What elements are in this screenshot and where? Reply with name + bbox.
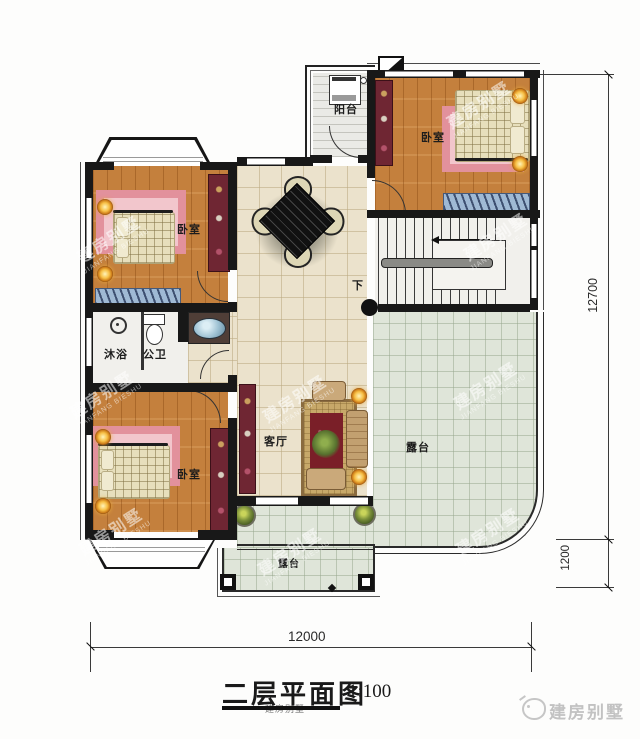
terrace-column-left xyxy=(220,574,236,590)
bay-top-sill2 xyxy=(103,161,203,162)
wall-segment xyxy=(228,375,237,392)
living-lamp xyxy=(351,469,367,485)
logo-icon-eye xyxy=(527,705,530,708)
dim-terrace-depth: 1200 xyxy=(560,545,572,571)
strip-outer-face-bottom xyxy=(217,596,380,597)
terrace-parapet-outer xyxy=(373,312,544,554)
basin-bowl xyxy=(193,318,226,339)
terrace-level-line2 xyxy=(237,549,375,550)
toilet-bowl xyxy=(146,324,163,345)
window xyxy=(86,198,92,258)
face-line-left xyxy=(80,162,81,540)
wall-bath-chunk xyxy=(178,310,188,342)
tv-cabinet xyxy=(239,384,256,494)
strip-outer-face-left xyxy=(217,548,218,597)
wall-segment xyxy=(85,383,237,392)
title-underline xyxy=(222,706,340,710)
face-line-right xyxy=(543,70,544,310)
bed1-wardrobe xyxy=(208,174,230,272)
stair-arrow-line xyxy=(438,239,490,240)
room-label-balcony: 阳台 xyxy=(334,101,358,117)
stair-handrail xyxy=(381,258,493,268)
stairs-down-label: 下 xyxy=(352,277,364,293)
wall-stairs-south xyxy=(378,304,530,312)
window xyxy=(86,318,92,366)
bed3-pillow xyxy=(510,126,525,154)
terrace-level-line xyxy=(237,544,375,546)
room-label-terrace-strip: 露台 xyxy=(278,555,300,570)
structural-column xyxy=(361,299,378,316)
window xyxy=(531,100,537,156)
wall-balcony-door-l xyxy=(310,155,332,163)
sheet-scale: 1:100 xyxy=(348,681,391,703)
room-label-bedroom1: 卧室 xyxy=(177,221,201,237)
bed1-lamp xyxy=(97,266,113,282)
sofa-top xyxy=(312,381,346,401)
bed1-blanket-edge xyxy=(113,210,173,213)
dim-ext-bot xyxy=(556,587,614,588)
wall-segment xyxy=(228,302,237,312)
balcony-knob xyxy=(360,77,367,84)
washer-panel xyxy=(332,77,356,81)
room-label-living: 客厅 xyxy=(264,433,288,449)
wall-bedroom3-west xyxy=(367,70,375,178)
bed2-pillow xyxy=(101,471,114,491)
bed2-lamp xyxy=(95,429,111,445)
window xyxy=(531,250,537,298)
window xyxy=(256,497,298,505)
floor-plan-sheet: 卧室 沐浴 公卫 卧室 阳台 卧室 xyxy=(0,0,640,739)
stair-arrow-head xyxy=(431,236,439,244)
wall-bedroom3-south xyxy=(367,210,540,218)
footer-logo-text: 建房别墅 xyxy=(549,698,625,723)
window xyxy=(466,71,524,77)
wall-segment xyxy=(85,530,114,540)
basin-counter xyxy=(188,312,230,344)
bed2-pillow xyxy=(101,450,114,470)
room-label-bedroom2: 卧室 xyxy=(177,466,201,482)
shower-drain-icon xyxy=(110,317,127,334)
dim-height-total: 12700 xyxy=(586,278,600,313)
wall-corridor-west-upper xyxy=(228,166,237,270)
room-label-shower: 沐浴 xyxy=(104,346,128,362)
window xyxy=(330,497,368,505)
dim-line-right xyxy=(608,75,609,588)
bed3-lamp xyxy=(512,156,528,172)
bed2-lamp xyxy=(95,498,111,514)
bay-window-bottom-glass xyxy=(91,540,213,567)
room-label-bedroom3: 卧室 xyxy=(421,129,445,145)
rug-centerpiece-flowers xyxy=(312,430,340,458)
bay-top-sill1 xyxy=(103,157,203,158)
bed3-bench xyxy=(443,193,530,211)
balcony-rail-left-in xyxy=(310,70,311,157)
bed3-wardrobe xyxy=(375,80,393,166)
strip-bottom-parapet xyxy=(222,590,375,592)
logo-icon-ear xyxy=(519,695,526,701)
balcony-rail-left xyxy=(305,65,307,159)
bed1-pillow xyxy=(116,238,129,258)
sofa-bottom xyxy=(306,468,346,490)
bed1-lamp xyxy=(97,199,113,215)
bay-bottom-sill1 xyxy=(99,547,205,548)
balcony-rail-top xyxy=(305,65,375,67)
bed1-pillow xyxy=(116,217,129,237)
dim-ext-mid xyxy=(556,539,614,540)
wall-segment xyxy=(85,303,237,312)
window xyxy=(86,435,92,503)
room-label-toilet: 公卫 xyxy=(143,346,167,362)
potted-plant xyxy=(353,503,376,526)
window xyxy=(531,224,537,246)
terrace-column-right xyxy=(358,574,374,590)
shower-drain-dot xyxy=(116,323,119,326)
bed3-lamp xyxy=(512,88,528,104)
bed2-blanket-edge xyxy=(98,443,168,446)
balcony-rail-top-in xyxy=(310,70,370,71)
living-lamp xyxy=(351,388,367,404)
dim-line-bottom xyxy=(90,647,531,648)
bay-bottom-sill2 xyxy=(99,551,205,552)
wall-corridor-west-lower xyxy=(228,418,237,540)
window xyxy=(385,71,453,77)
window xyxy=(247,158,285,165)
logo-pig-icon xyxy=(522,698,546,720)
sofa-right xyxy=(346,410,368,468)
dim-ext-top xyxy=(540,74,614,75)
room-label-terrace-main: 露台 xyxy=(406,439,430,455)
dim-width-total: 12000 xyxy=(288,629,326,644)
